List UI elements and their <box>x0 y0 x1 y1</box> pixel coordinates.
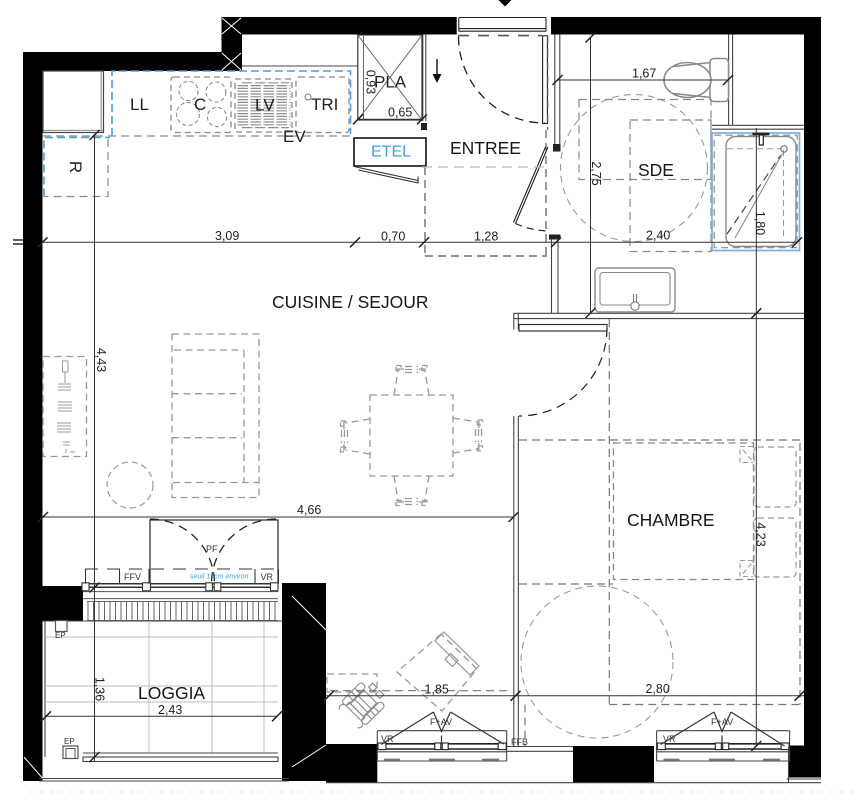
svg-text:C: C <box>194 95 206 114</box>
svg-text:PLA: PLA <box>374 73 407 92</box>
svg-text:1,85: 1,85 <box>425 683 449 697</box>
svg-text:LV: LV <box>255 96 275 115</box>
svg-text:EV: EV <box>283 127 306 146</box>
svg-text:FFV: FFV <box>124 572 141 582</box>
svg-text:EP: EP <box>55 631 66 640</box>
svg-text:ENTREE: ENTREE <box>450 138 521 158</box>
svg-text:2,75: 2,75 <box>589 161 603 185</box>
svg-text:VR: VR <box>261 572 274 582</box>
svg-text:seuil 15cm environ: seuil 15cm environ <box>190 574 248 581</box>
svg-text:4,43: 4,43 <box>94 348 108 372</box>
svg-text:VR: VR <box>663 734 676 744</box>
svg-text:1,80: 1,80 <box>753 211 767 235</box>
svg-text:1,67: 1,67 <box>632 67 656 81</box>
svg-text:TRI: TRI <box>311 95 338 114</box>
svg-text:0,70: 0,70 <box>381 230 405 244</box>
svg-text:CHAMBRE: CHAMBRE <box>627 510 715 530</box>
svg-text:0,65: 0,65 <box>388 106 412 120</box>
svg-text:F+AV: F+AV <box>430 717 452 727</box>
svg-text:2,40: 2,40 <box>646 229 670 243</box>
svg-text:SDE: SDE <box>638 160 674 180</box>
svg-text:2,80: 2,80 <box>646 682 670 696</box>
svg-text:2,43: 2,43 <box>158 703 182 717</box>
svg-text:1,28: 1,28 <box>474 230 498 244</box>
svg-text:1,36: 1,36 <box>93 677 107 701</box>
svg-text:4,66: 4,66 <box>297 503 321 517</box>
svg-text:PF: PF <box>206 544 218 554</box>
svg-text:3,09: 3,09 <box>215 229 239 243</box>
svg-text:FFB: FFB <box>511 737 528 747</box>
svg-text:EP: EP <box>64 737 75 746</box>
svg-text:CUISINE / SEJOUR: CUISINE / SEJOUR <box>272 292 429 312</box>
svg-text:LL: LL <box>130 95 149 114</box>
svg-text:ETEL: ETEL <box>371 144 411 161</box>
svg-text:4,23: 4,23 <box>754 522 768 546</box>
svg-text:LOGGIA: LOGGIA <box>138 683 205 703</box>
svg-text:VR: VR <box>381 734 394 744</box>
svg-text:F+AV: F+AV <box>711 717 733 727</box>
svg-text:R: R <box>66 161 85 173</box>
